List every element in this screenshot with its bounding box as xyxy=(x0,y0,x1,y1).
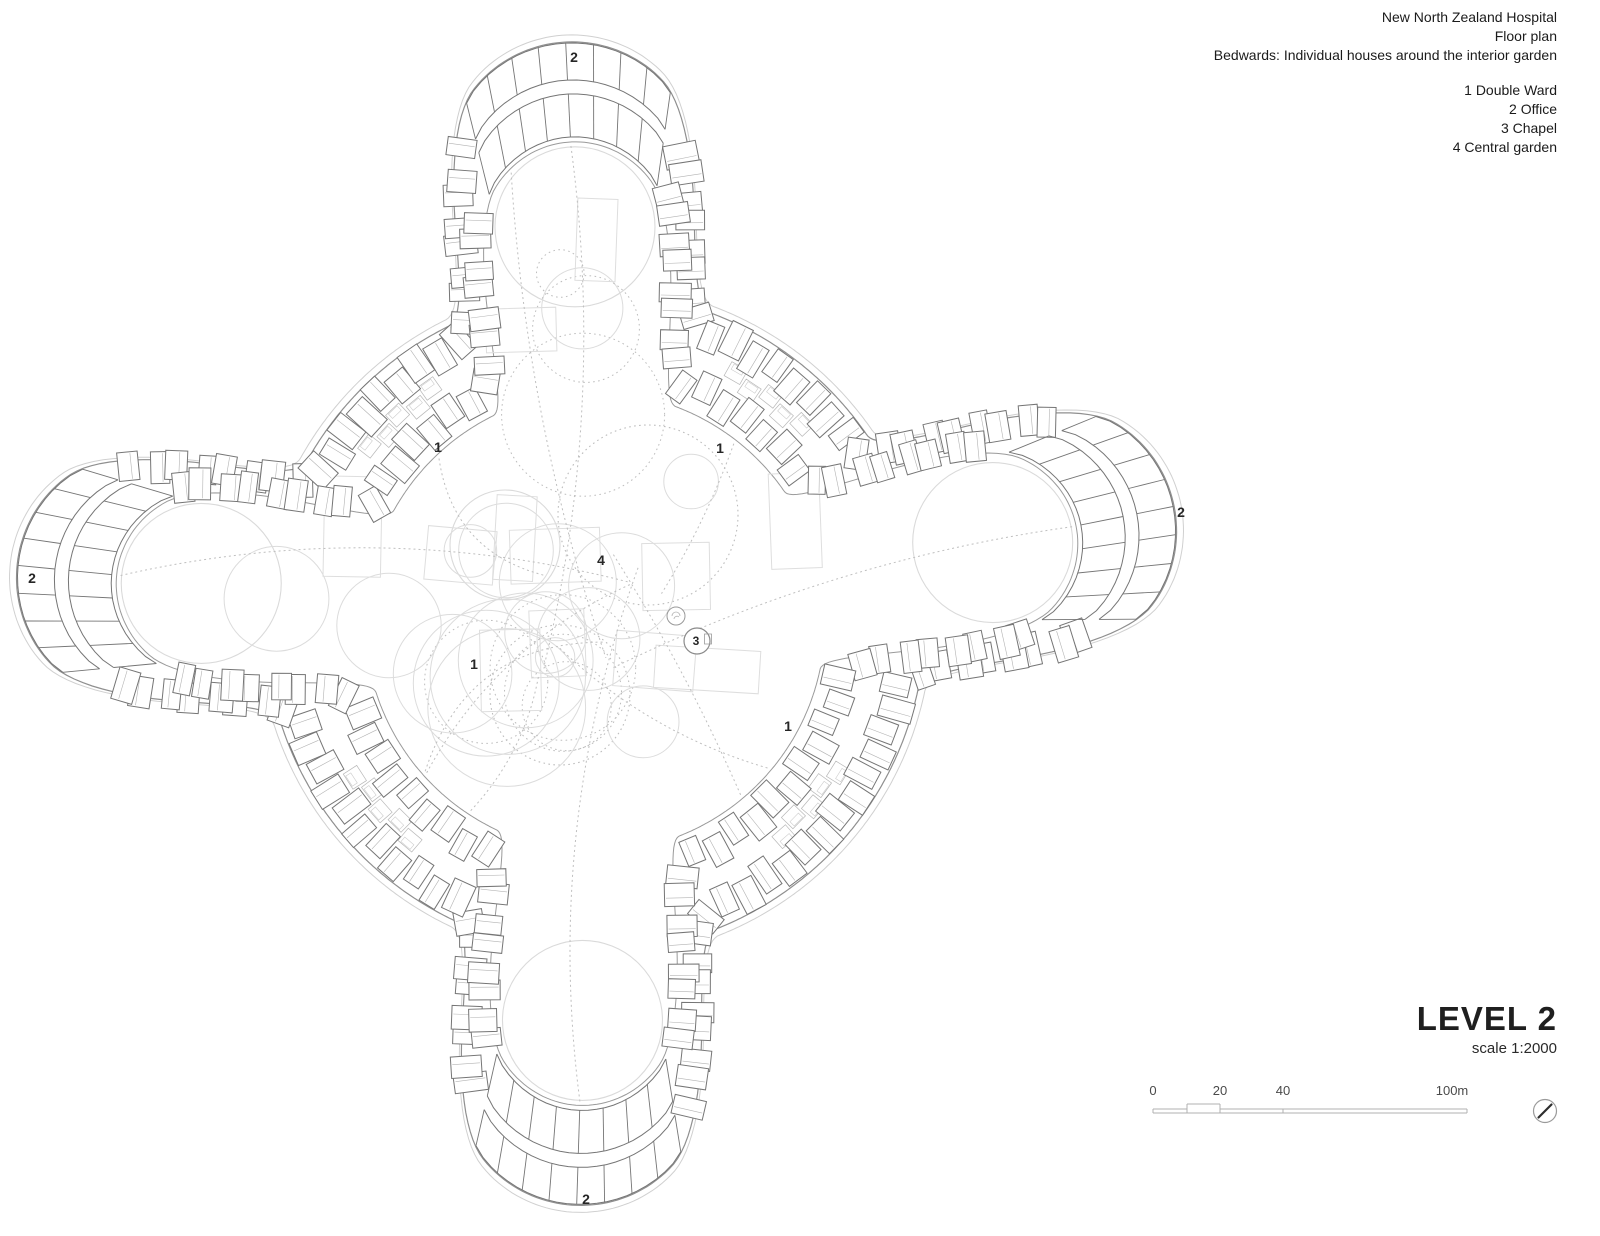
legend-num: 3 xyxy=(1501,120,1509,136)
plan-outer-boundary xyxy=(10,35,1184,1213)
plan-label-2: 2 xyxy=(28,570,36,586)
level-title: LEVEL 2 xyxy=(1417,1002,1557,1036)
plan-label-chapel: 3 xyxy=(693,634,700,648)
north-arrow-icon xyxy=(1534,1100,1557,1123)
floor-plan-drawing: 322221111402040100m xyxy=(0,0,1600,1236)
legend-label: Central garden xyxy=(1464,139,1557,155)
chapel: 3 xyxy=(667,607,712,654)
plan-label-2: 2 xyxy=(570,49,578,65)
central-garden xyxy=(121,146,1073,1101)
legend: 1 Double Ward 2 Office 3 Chapel 4 Centra… xyxy=(1453,81,1557,157)
ward-rooms xyxy=(111,137,1092,1121)
scale-bar-label-0: 0 xyxy=(1149,1083,1156,1098)
legend-item-2: 2 Office xyxy=(1453,100,1557,119)
legend-item-1: 1 Double Ward xyxy=(1453,81,1557,100)
legend-item-3: 3 Chapel xyxy=(1453,119,1557,138)
plan-label-1: 1 xyxy=(716,440,724,456)
legend-item-4: 4 Central garden xyxy=(1453,138,1557,157)
legend-num: 2 xyxy=(1509,101,1517,117)
drawing-sheet: 322221111402040100m New North Zealand Ho… xyxy=(0,0,1600,1236)
scale-bar-label-20: 20 xyxy=(1213,1083,1227,1098)
project-description: Bedwards: Individual houses around the i… xyxy=(1214,46,1557,65)
legend-label: Office xyxy=(1521,101,1557,117)
plan-label-2: 2 xyxy=(1177,504,1185,520)
plan-label-1: 1 xyxy=(784,718,792,734)
plan-label-1: 1 xyxy=(470,656,478,672)
level-scale: scale 1:2000 xyxy=(1417,1040,1557,1057)
legend-num: 4 xyxy=(1453,139,1461,155)
plan-label-2: 2 xyxy=(582,1191,590,1207)
scale-bar-label-100m: 100m xyxy=(1436,1083,1469,1098)
project-title-block: New North Zealand Hospital Floor plan Be… xyxy=(1214,8,1557,65)
legend-label: Chapel xyxy=(1513,120,1557,136)
scale-bar: 02040100m xyxy=(1149,1083,1468,1113)
plan-label-4: 4 xyxy=(597,552,605,568)
office-fans xyxy=(18,43,1176,1204)
project-subtitle: Floor plan xyxy=(1214,27,1557,46)
level-title-block: LEVEL 2 scale 1:2000 xyxy=(1417,1002,1557,1057)
legend-num: 1 xyxy=(1464,82,1472,98)
legend-label: Double Ward xyxy=(1476,82,1557,98)
project-title: New North Zealand Hospital xyxy=(1214,8,1557,27)
scale-bar-label-40: 40 xyxy=(1276,1083,1290,1098)
plan-label-1: 1 xyxy=(434,439,442,455)
